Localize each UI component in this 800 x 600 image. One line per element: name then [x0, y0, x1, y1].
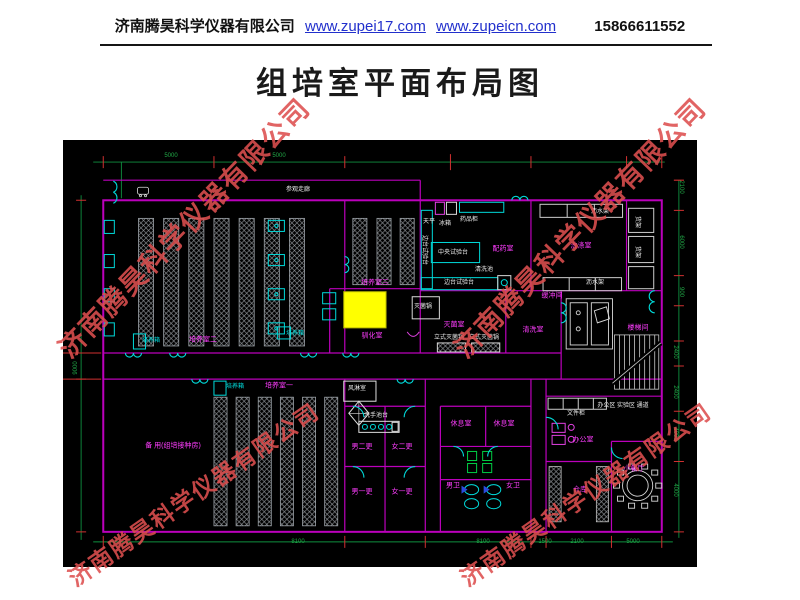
- label-acclimatization-room: 驯化室: [362, 333, 383, 340]
- link-zupei17[interactable]: www.zupei17.com: [305, 18, 426, 35]
- label-incubator: 培养箱: [226, 384, 244, 390]
- label-men-toilet: 男卫: [446, 483, 460, 490]
- label-women-change-2: 女二更: [392, 444, 413, 451]
- label-shelf: 货架: [634, 216, 640, 228]
- label-air-shower: 风淋室: [348, 386, 366, 392]
- label-stairwell: 楼梯间: [628, 325, 649, 332]
- label-culture-room-1: 培养室一: [265, 383, 293, 390]
- link-zupeicn[interactable]: www.zupeicn.com: [436, 18, 556, 35]
- dimension-label: 1500: [538, 539, 551, 545]
- label-hand-wash-counter: 洗手池台: [364, 413, 388, 419]
- label-culture-room-3: 培养室三: [361, 280, 389, 287]
- label-central-bench: 中央试验台: [438, 250, 468, 256]
- label-fridge: 冰箱: [439, 221, 451, 227]
- plan-labels-layer: 参观走廊培养室二培养室三驯化室培养室一备 用(组培接种房)配药室洗涤室灭菌室清洗…: [63, 140, 697, 567]
- label-men-change-2: 男二更: [352, 444, 373, 451]
- label-shelf: 货架: [634, 246, 640, 258]
- dimension-label: 2100: [570, 539, 583, 545]
- label-corridor-note: 办公区 实验区 通道: [597, 403, 648, 409]
- label-spare-room: 备 用(组培接种房): [145, 443, 201, 450]
- label-drain-rack: 沥水架: [586, 280, 604, 286]
- dimension-label: 2100: [678, 180, 684, 193]
- dimension-label: 6000: [678, 235, 684, 248]
- dimension-label: 4000: [672, 483, 678, 496]
- label-side-bench: 边台试验台: [421, 235, 427, 265]
- page: 济南腾昊科学仪器有限公司 www.zupei17.com www.zupeicn…: [0, 0, 800, 600]
- dimension-label: 4000: [672, 427, 678, 440]
- label-wash-sink: 清洗池: [475, 267, 493, 273]
- label-sterilization-room: 灭菌室: [444, 322, 465, 329]
- label-storage: 仓库: [573, 487, 587, 494]
- label-rest-room-1: 休息室: [451, 421, 472, 428]
- phone-number: 15866611552: [594, 18, 685, 35]
- label-men-change-1: 男一更: [352, 489, 373, 496]
- label-washing-room: 洗涤室: [571, 243, 592, 250]
- page-title: 组培室平面布局图: [0, 58, 800, 103]
- dimension-label: 8100: [291, 539, 304, 545]
- dimension-label: 2400: [672, 345, 678, 358]
- label-small-dining: 小餐厅: [624, 466, 645, 473]
- dimension-label: 5000: [164, 153, 177, 159]
- label-autoclave: 灭菌锅: [414, 304, 432, 310]
- header-divider: [100, 44, 712, 46]
- dimension-label: 900: [678, 287, 684, 297]
- label-drain-rack: 沥水架: [591, 209, 609, 215]
- dimension-label: 5000: [272, 153, 285, 159]
- label-women-change-1: 女一更: [392, 489, 413, 496]
- label-culture-room-2: 培养室二: [189, 337, 217, 344]
- label-incubator: 培养箱: [142, 338, 160, 344]
- label-visitor-corridor: 参观走廊: [286, 187, 310, 193]
- label-media-prep-room: 配药室: [493, 246, 514, 253]
- dimension-label: 2400: [672, 385, 678, 398]
- label-vertical-autoclave: 立式灭菌锅: [469, 335, 499, 341]
- dimension-label: 5000: [626, 539, 639, 545]
- dimension-label: 8100: [476, 539, 489, 545]
- label-file-cabinet: 文件柜: [567, 411, 585, 417]
- label-rest-room-2: 休息室: [494, 421, 515, 428]
- dimension-label: 9000: [73, 361, 79, 374]
- label-medicine-cabinet: 药品柜: [460, 217, 478, 223]
- label-cleaning-room: 清洗室: [523, 327, 544, 334]
- floor-plan: 参观走廊培养室二培养室三驯化室培养室一备 用(组培接种房)配药室洗涤室灭菌室清洗…: [63, 140, 697, 567]
- label-women-toilet: 女卫: [506, 483, 520, 490]
- label-vertical-autoclave: 立式灭菌锅: [434, 335, 464, 341]
- label-office: 办公室: [573, 437, 594, 444]
- label-incubator: 培养箱: [286, 331, 304, 337]
- label-balance: 天平: [423, 219, 435, 225]
- header: 济南腾昊科学仪器有限公司 www.zupei17.com www.zupeicn…: [0, 15, 800, 36]
- label-buffer-room: 缓冲间: [542, 293, 563, 300]
- company-name: 济南腾昊科学仪器有限公司: [115, 18, 295, 35]
- label-side-bench: 边台试验台: [444, 280, 474, 286]
